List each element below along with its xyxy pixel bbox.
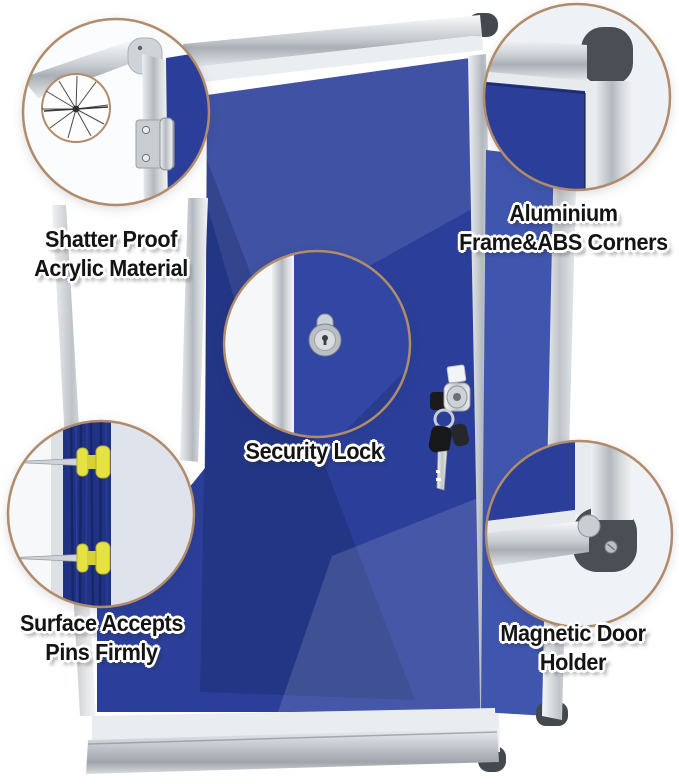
screw-icon <box>605 541 617 553</box>
frame-side-bar <box>594 81 634 197</box>
abs-corner-cap-icon <box>581 27 633 85</box>
screw-icon <box>138 46 142 50</box>
callout-label-aluminium-corner: Aluminium Frame&ABS Corners <box>455 199 672 257</box>
frame-lip <box>575 434 593 514</box>
label-line: Acrylic Material <box>7 254 216 283</box>
frame-lip <box>585 81 594 197</box>
label-line: Holder <box>473 648 672 677</box>
acrylic-edge <box>51 414 63 614</box>
cracked-acrylic-icon <box>42 74 110 142</box>
label-line: Security Lock <box>228 437 401 466</box>
callout-shatter-proof <box>16 12 216 212</box>
label-line: Frame&ABS Corners <box>455 228 672 257</box>
callout-magnetic-holder <box>479 434 679 634</box>
key-tooth <box>436 478 441 481</box>
callout-label-shatter-proof: Shatter Proof Acrylic Material <box>7 225 216 283</box>
callout-pin-surface <box>1 414 201 614</box>
magnet-icon <box>578 515 600 537</box>
label-line: Magnetic Door <box>473 619 672 648</box>
label-line: Shatter Proof <box>7 225 216 254</box>
felt-closeup <box>479 434 575 522</box>
key-tooth <box>436 470 440 473</box>
keyhole-slot <box>324 338 327 345</box>
hinge-icon <box>136 118 174 170</box>
callout-security-lock <box>217 244 417 444</box>
lock-keyway <box>453 393 461 401</box>
product-feature-image: Shatter Proof Acrylic Material Aluminium… <box>0 0 679 784</box>
door-edge-bar <box>272 244 294 444</box>
label-line: Pins Firmly <box>4 638 199 667</box>
lock-cam-tab <box>447 365 466 383</box>
callout-aluminium-corner <box>477 0 677 197</box>
callout-label-pin-surface: Surface Accepts Pins Firmly <box>4 609 199 667</box>
label-line: Surface Accepts <box>4 609 199 638</box>
callout-label-security-lock: Security Lock <box>228 437 401 466</box>
callout-label-magnetic-holder: Magnetic Door Holder <box>473 619 672 677</box>
label-line: Aluminium <box>455 199 672 228</box>
